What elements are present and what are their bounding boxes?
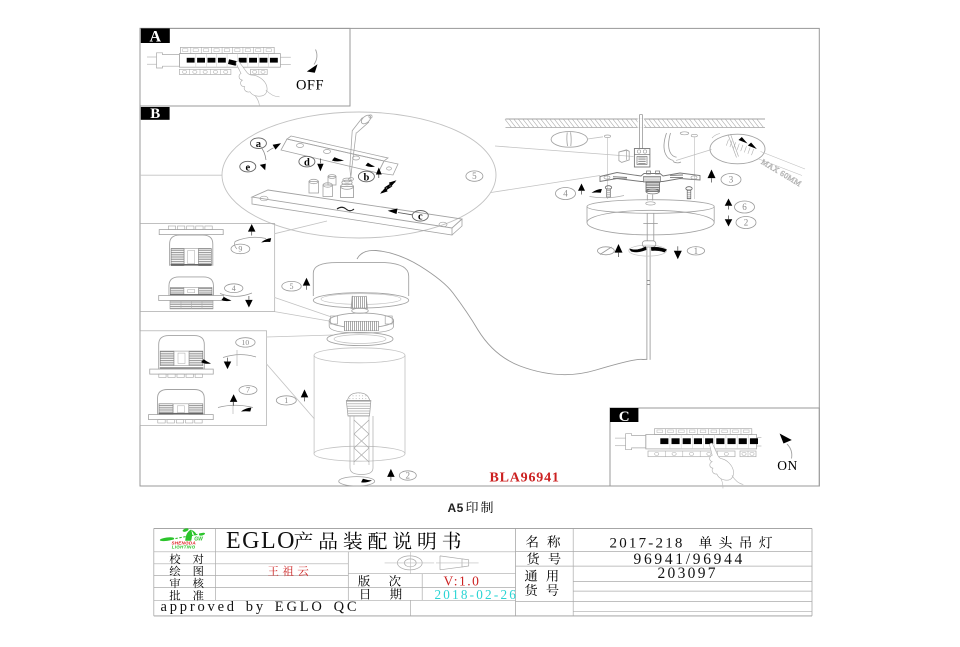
- svg-text:B: B: [150, 106, 160, 122]
- svg-text:9: 9: [238, 245, 242, 254]
- svg-text:e: e: [245, 162, 250, 173]
- svg-text:C: C: [619, 409, 630, 425]
- svg-text:a: a: [256, 139, 262, 150]
- svg-text:5: 5: [472, 171, 477, 181]
- svg-text:2018-02-26: 2018-02-26: [435, 587, 519, 602]
- svg-text:EGLO: EGLO: [226, 528, 296, 554]
- svg-text:3: 3: [729, 175, 734, 185]
- svg-text:1: 1: [694, 246, 699, 256]
- svg-text:203097: 203097: [658, 565, 718, 582]
- svg-text:LIGHTING: LIGHTING: [172, 544, 196, 549]
- svg-text:OFF: OFF: [296, 78, 324, 94]
- svg-text:b: b: [363, 172, 369, 183]
- svg-text:A: A: [150, 28, 162, 45]
- svg-text:c: c: [418, 212, 423, 223]
- svg-text:5: 5: [290, 282, 294, 291]
- svg-text:7: 7: [246, 386, 250, 395]
- svg-text:A5: A5: [448, 501, 464, 515]
- svg-text:4: 4: [563, 189, 568, 199]
- svg-text:2017-218: 2017-218: [610, 535, 685, 551]
- svg-text:d: d: [304, 157, 310, 168]
- svg-text:4: 4: [232, 284, 236, 293]
- svg-text:10: 10: [242, 338, 250, 347]
- svg-text:6: 6: [742, 202, 747, 212]
- svg-text:approved by EGLO QC: approved by EGLO QC: [161, 599, 360, 615]
- svg-text:MAX 60MM: MAX 60MM: [760, 157, 803, 188]
- svg-text:BLA96941: BLA96941: [490, 470, 560, 485]
- svg-text:2: 2: [406, 471, 411, 481]
- svg-text:ON: ON: [777, 458, 798, 473]
- svg-text:2: 2: [744, 218, 749, 228]
- svg-text:1: 1: [284, 396, 288, 405]
